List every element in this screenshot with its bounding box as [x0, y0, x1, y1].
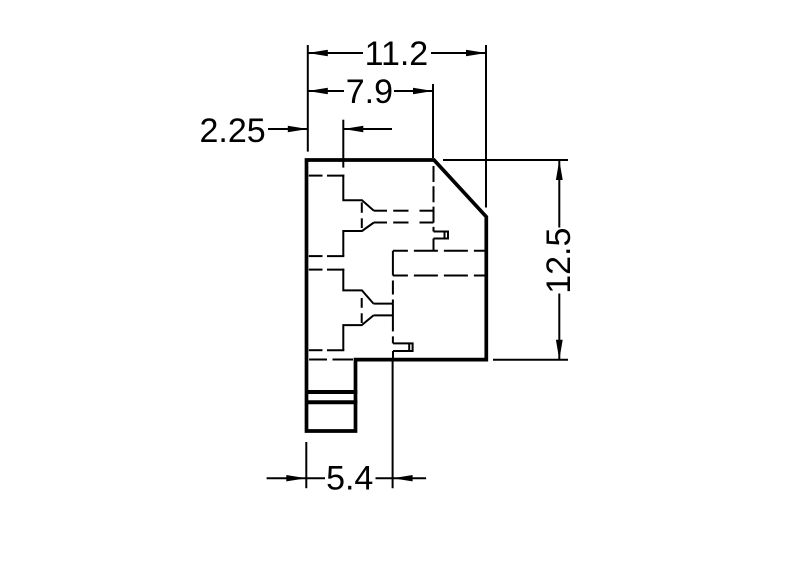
svg-text:2.25: 2.25: [200, 112, 266, 150]
svg-text:12.5: 12.5: [540, 228, 578, 294]
svg-text:5.4: 5.4: [326, 459, 373, 497]
svg-text:7.9: 7.9: [346, 73, 393, 111]
svg-text:11.2: 11.2: [365, 35, 429, 73]
